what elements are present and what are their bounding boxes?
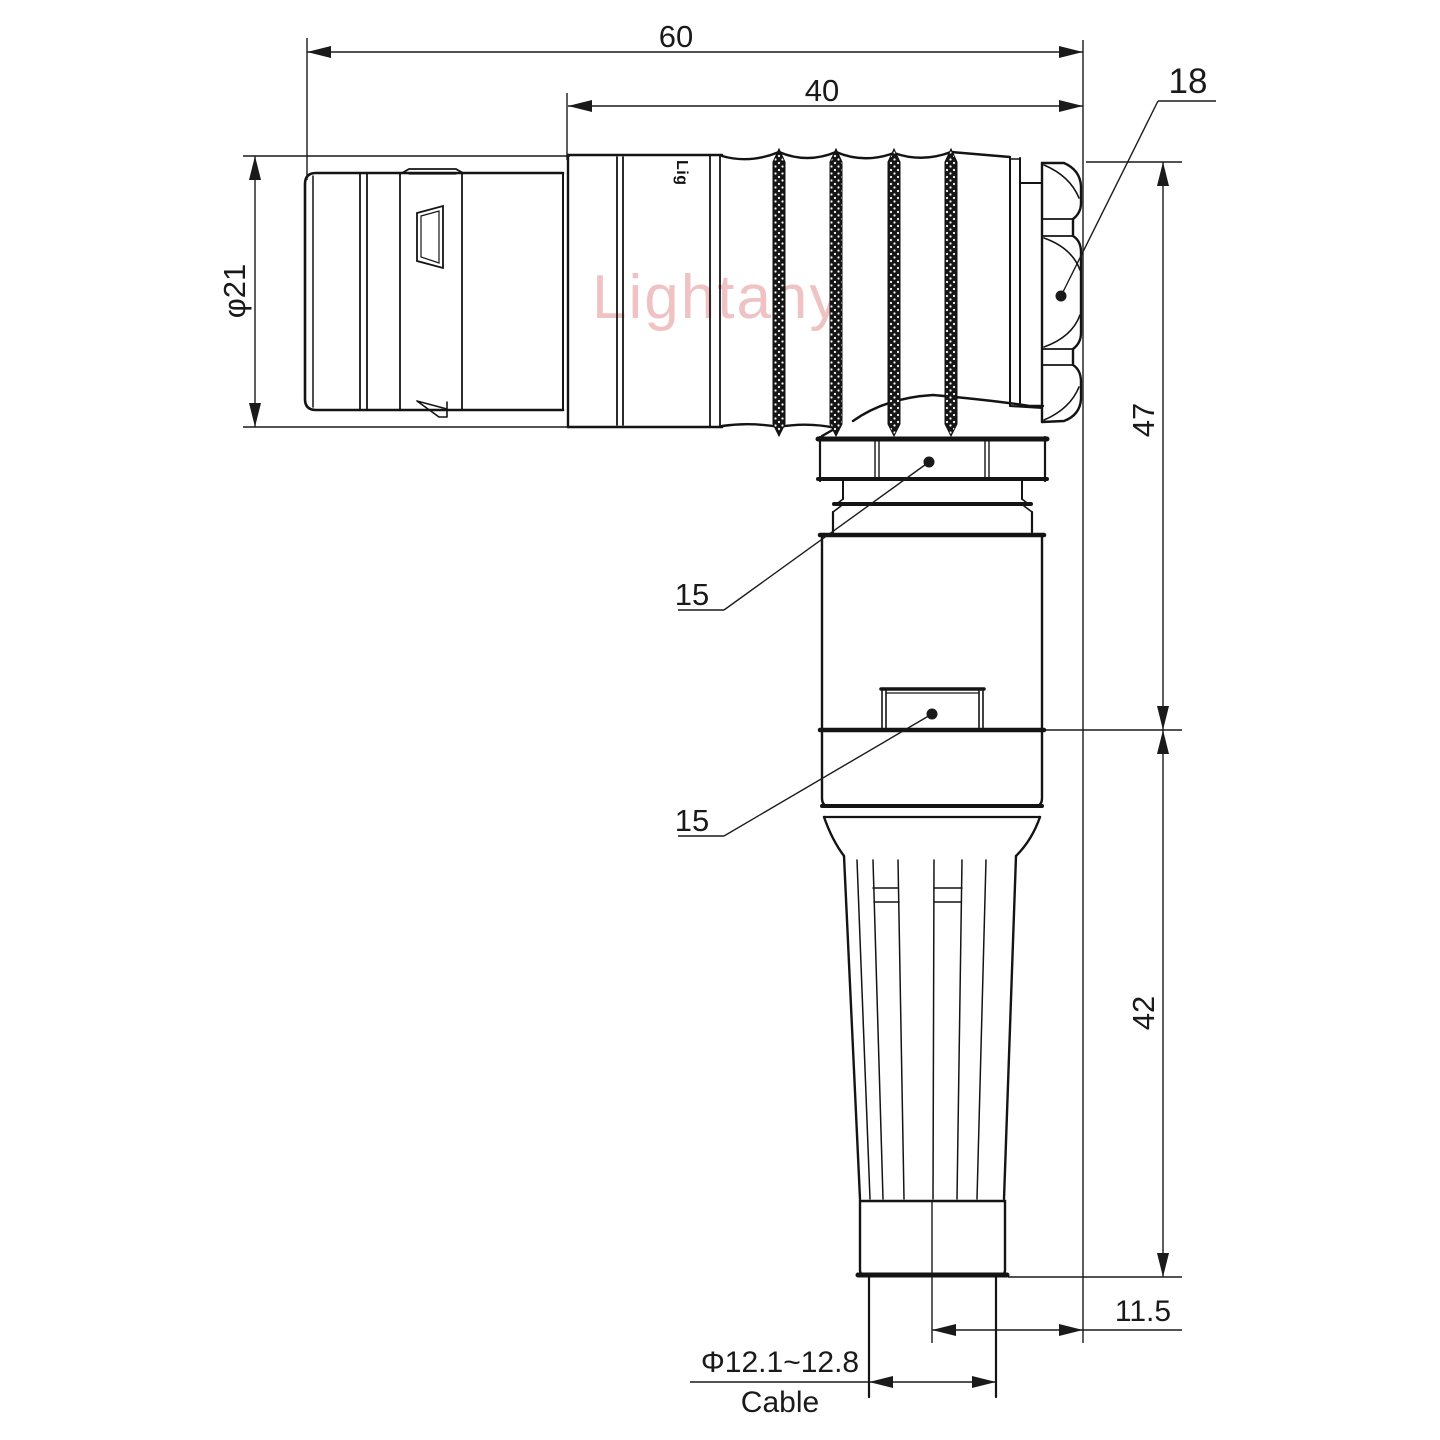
arrow-115-left: [932, 1324, 956, 1336]
arrow-47-bottom: [1157, 706, 1169, 730]
ring-chamfer-right: [1024, 506, 1032, 512]
dim-coupling-hex-label: 15: [675, 577, 709, 612]
dim-nut-width-label: 18: [1169, 62, 1208, 101]
arrow-42-bottom: [1157, 1253, 1169, 1277]
cable-text-label: Cable: [741, 1386, 819, 1419]
dim-upper-height-label: 47: [1126, 403, 1161, 437]
dim-cable-diameter-label: Φ12.1~12.8: [701, 1346, 859, 1379]
connector-technical-drawing: Lightany: [0, 0, 1440, 1440]
arrow-cable-right: [972, 1376, 996, 1388]
lower-body-left: [822, 732, 827, 806]
knurl-band-3: [888, 149, 900, 436]
arrow-21-top: [249, 156, 261, 180]
boot-flare-left: [824, 817, 844, 856]
arrow-cable-left: [869, 1376, 893, 1388]
ring-chamfer-left: [833, 506, 841, 512]
dimension-lines: [243, 38, 1216, 1382]
boot-flutes: [857, 860, 986, 1199]
shell-brand-logo: Lig: [673, 160, 690, 186]
dim-lower-height-label: 42: [1126, 996, 1161, 1030]
arrow-40-right: [1059, 100, 1083, 112]
bayonet-window-inner: [421, 211, 439, 263]
boot-flute-line-3: [898, 860, 904, 1199]
leader-15a-dot: [924, 457, 935, 468]
dim-shell-diameter-label: φ21: [217, 264, 252, 319]
knurl-top-outline: [722, 152, 1010, 159]
leader-18-line: [1061, 101, 1158, 296]
leader-18-dot: [1056, 291, 1067, 302]
boot-outer-left: [844, 856, 860, 1199]
arrow-47-top: [1157, 162, 1169, 186]
boot-flare-right: [1016, 817, 1040, 856]
hexnut-arc-4: [1044, 315, 1080, 347]
dim-overall-length-label: 60: [659, 19, 693, 54]
boot-flute-line-5: [957, 860, 962, 1199]
boot-flute-line-4: [933, 860, 934, 1199]
arrow-115-right: [1059, 1324, 1083, 1336]
arrow-60-left: [307, 46, 331, 58]
dim-rear-length-label: 40: [805, 73, 839, 108]
arrow-40-left: [568, 100, 592, 112]
watermark-text: Lightany: [592, 263, 842, 332]
leader-15b-dot: [927, 709, 938, 720]
arrow-42-top: [1157, 730, 1169, 754]
arrow-21-bottom: [249, 403, 261, 427]
boot-flute-line-2: [873, 860, 883, 1199]
knurl-band-1: [773, 149, 785, 436]
knurl-band-2: [830, 149, 842, 436]
dim-cable-offset-label: 11.5: [1115, 1295, 1171, 1328]
boot-outer-right: [1004, 856, 1016, 1199]
drawing-page: Lightany: [0, 0, 1440, 1440]
arrow-60-right: [1059, 46, 1083, 58]
hexnut-arc-3: [1044, 238, 1080, 270]
lower-body-right: [1037, 732, 1042, 806]
knurl-band-4: [945, 149, 957, 436]
boot-flute-line-6: [977, 860, 986, 1199]
dim-body-hex-label: 15: [675, 803, 709, 838]
boot-flute-line-1: [857, 860, 870, 1199]
dimension-arrows: [249, 46, 1169, 1388]
